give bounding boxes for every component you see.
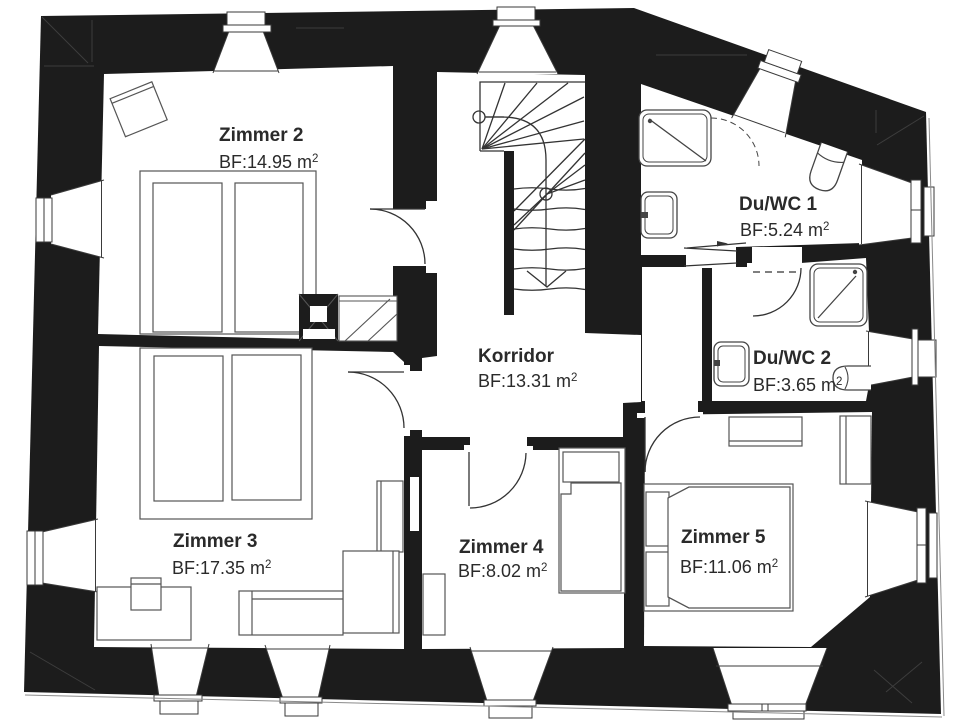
- svg-text:Zimmer 4: Zimmer 4: [459, 537, 544, 558]
- svg-text:BF:17.35 m2: BF:17.35 m2: [172, 558, 271, 578]
- svg-text:BF:8.02 m2: BF:8.02 m2: [458, 561, 547, 581]
- svg-text:Zimmer 3: Zimmer 3: [173, 531, 257, 552]
- svg-text:Korridor: Korridor: [478, 346, 555, 367]
- svg-text:Zimmer 5: Zimmer 5: [681, 527, 766, 548]
- svg-text:BF:5.24 m2: BF:5.24 m2: [740, 220, 829, 240]
- svg-text:Du/WC 1: Du/WC 1: [739, 194, 818, 215]
- svg-text:BF:3.65 m2: BF:3.65 m2: [753, 375, 842, 395]
- svg-text:Du/WC 2: Du/WC 2: [753, 348, 831, 369]
- svg-text:BF:11.06 m2: BF:11.06 m2: [680, 557, 778, 577]
- svg-text:BF:14.95 m2: BF:14.95 m2: [219, 152, 318, 172]
- svg-text:BF:13.31 m2: BF:13.31 m2: [478, 371, 577, 391]
- svg-text:Zimmer 2: Zimmer 2: [219, 125, 303, 146]
